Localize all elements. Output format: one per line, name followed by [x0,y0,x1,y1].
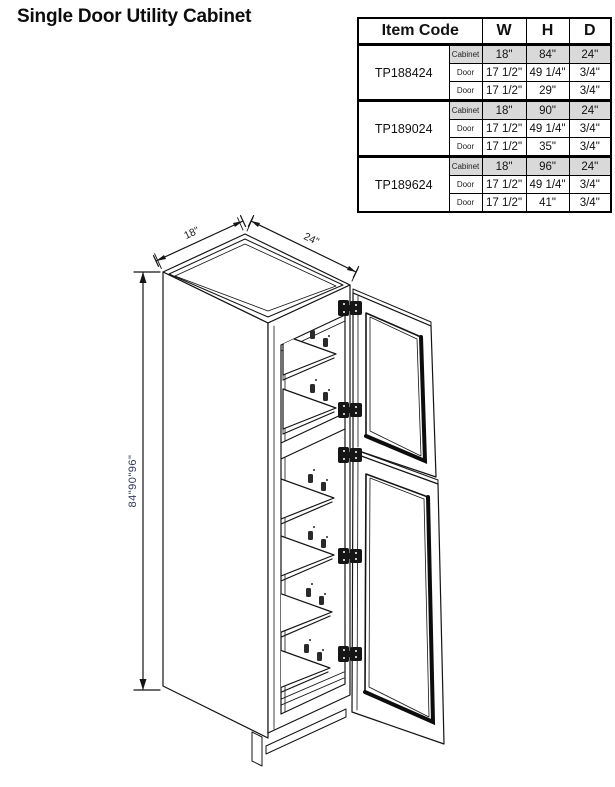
spec-sheet-page: { "page": { "title": "Single Door Utilit… [0,0,615,787]
width-dim-label: 18" [182,224,201,242]
height-dim-label: 84"90"96" [127,455,139,508]
depth-dim-label: 24" [302,231,321,249]
lower-door [352,449,444,744]
cabinet-drawing: 84"90"96" 18" 24" [0,0,615,787]
upper-door [353,289,436,477]
height-dimension: 84"90"96" [127,272,160,690]
